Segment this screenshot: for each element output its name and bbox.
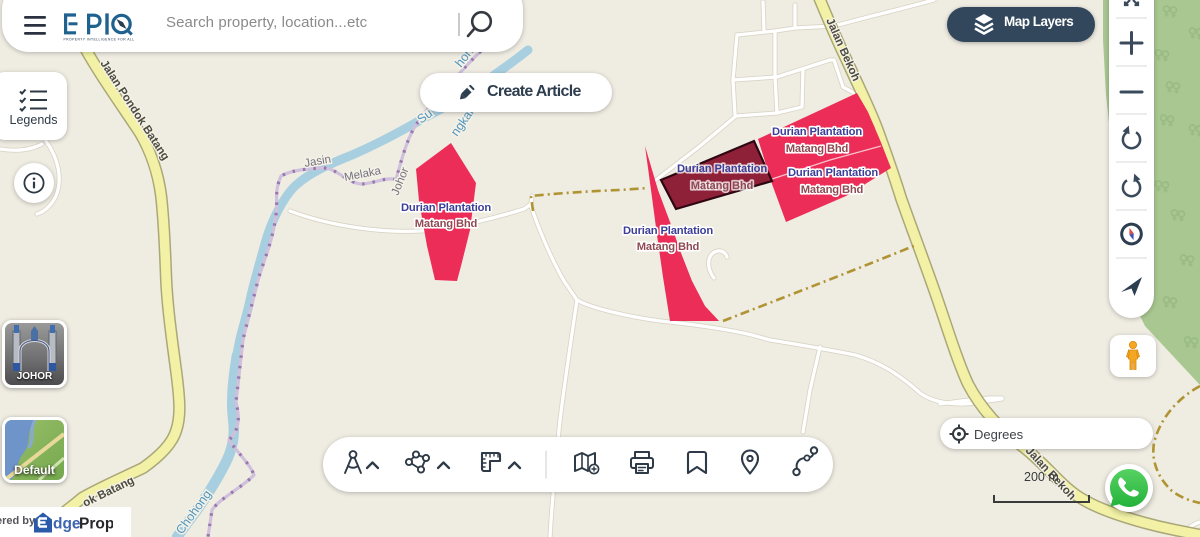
svg-text:Durian Plantation: Durian Plantation bbox=[772, 126, 862, 138]
svg-text:Prop: Prop bbox=[79, 516, 113, 533]
svg-text:PROPERTY INTELLIGENCE FOR ALL: PROPERTY INTELLIGENCE FOR ALL bbox=[64, 38, 135, 42]
svg-text:Matang Bhd: Matang Bhd bbox=[691, 180, 754, 192]
svg-text:Matang Bhd: Matang Bhd bbox=[786, 143, 849, 155]
svg-text:Durian Plantation: Durian Plantation bbox=[623, 225, 713, 237]
svg-text:dge: dge bbox=[53, 516, 81, 533]
svg-text:Matang Bhd: Matang Bhd bbox=[415, 218, 478, 230]
svg-text:Durian Plantation: Durian Plantation bbox=[788, 167, 878, 179]
svg-text:Durian Plantation: Durian Plantation bbox=[401, 202, 491, 214]
svg-text:Durian Plantation: Durian Plantation bbox=[677, 163, 767, 175]
svg-text:Matang Bhd: Matang Bhd bbox=[801, 184, 864, 196]
svg-text:Matang Bhd: Matang Bhd bbox=[637, 241, 700, 253]
